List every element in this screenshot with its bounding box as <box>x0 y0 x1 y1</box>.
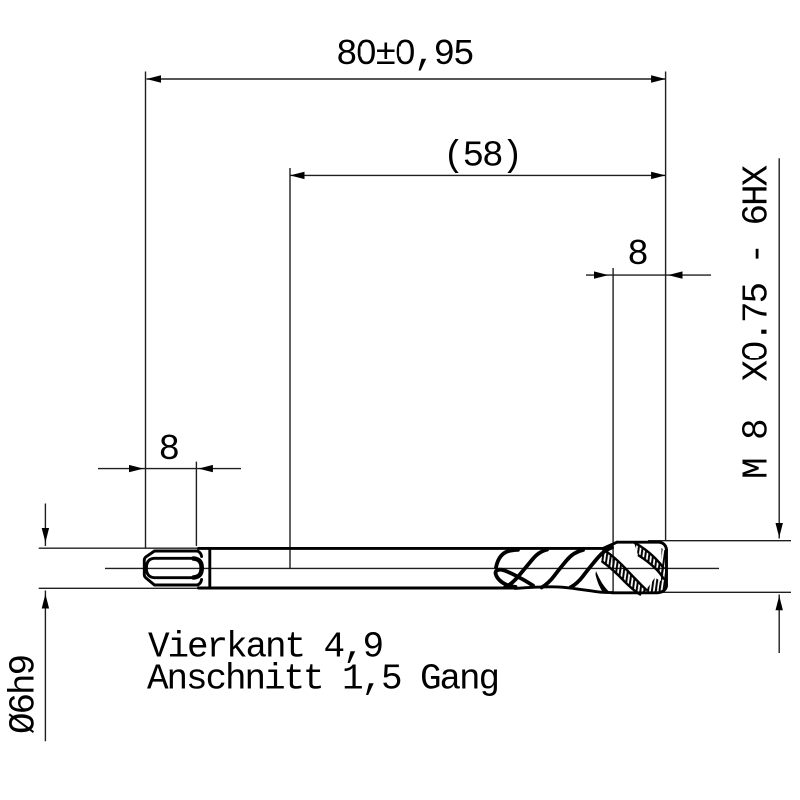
svg-text:Anschnitt 1,5 Gang: Anschnitt 1,5 Gang <box>147 659 498 700</box>
svg-text:M 8 X0.75 - 6HX: M 8 X0.75 - 6HX <box>737 165 778 479</box>
svg-text:Ø6h9: Ø6h9 <box>4 655 45 734</box>
svg-text:(58): (58) <box>443 136 521 177</box>
svg-text:8: 8 <box>159 429 179 470</box>
svg-text:8: 8 <box>627 234 647 275</box>
